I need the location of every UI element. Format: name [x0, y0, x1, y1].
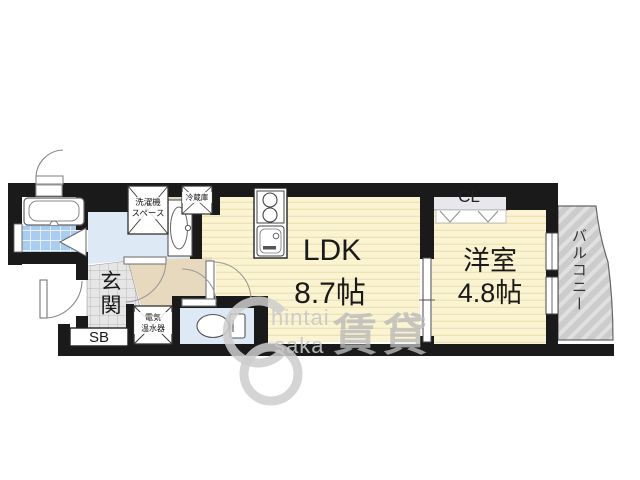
watermark-kanji: 賃貸 [333, 299, 433, 363]
watermark-text: saka [274, 333, 324, 359]
stove-burner-icon [263, 208, 277, 222]
closet-folding-door [436, 210, 506, 223]
water-heater-label: 電気 温水器 [134, 312, 172, 334]
toilet [197, 314, 245, 338]
entrance-label: 玄関 [94, 270, 124, 318]
entrance-door [40, 280, 82, 318]
ldk-room-label: LDK [262, 234, 402, 268]
shoe-box-label: SB [72, 329, 126, 346]
floorplan-image: LDK 8.7帖 洋室 4.8帖 CL バルコニー 玄関 SB 洗濯機 スペース… [0, 0, 640, 480]
watermark-text: hintai [271, 305, 330, 331]
refrigerator-label: 冷蔵庫 [182, 192, 212, 203]
closet-label: CL [432, 186, 506, 208]
washing-machine-space-label: 洗濯機 スペース [129, 197, 167, 219]
balcony-label: バルコニー [568, 228, 589, 313]
utility-door-top [36, 150, 63, 196]
bathroom-side-window [14, 224, 22, 252]
stove-burner-icon [263, 193, 277, 207]
western-room-size: 4.8帖 [428, 271, 552, 310]
bathtub [24, 198, 84, 225]
